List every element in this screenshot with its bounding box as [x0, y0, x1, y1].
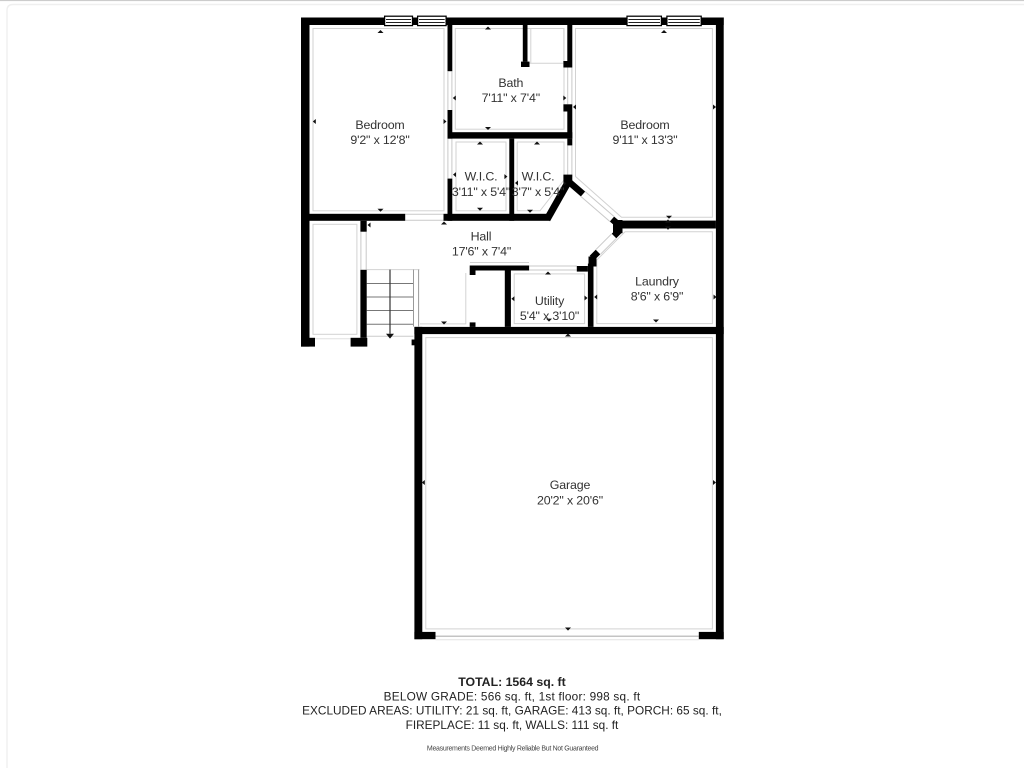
svg-text:3'7" x 5'4": 3'7" x 5'4" — [512, 185, 565, 199]
svg-text:17'6" x 7'4": 17'6" x 7'4" — [452, 245, 511, 259]
svg-text:9'11" x 13'3": 9'11" x 13'3" — [612, 133, 677, 147]
svg-text:Bedroom: Bedroom — [620, 118, 669, 132]
svg-text:9'2" x 12'8": 9'2" x 12'8" — [350, 133, 409, 147]
svg-text:5'4" x 3'10": 5'4" x 3'10" — [520, 309, 579, 323]
svg-text:Hall: Hall — [471, 230, 492, 244]
svg-text:BELOW GRADE: 566 sq. ft, 1st f: BELOW GRADE: 566 sq. ft, 1st floor: 998 … — [384, 689, 641, 703]
svg-text:Garage: Garage — [550, 478, 591, 492]
svg-text:8'6" x 6'9": 8'6" x 6'9" — [631, 290, 684, 304]
svg-text:7'11" x 7'4": 7'11" x 7'4" — [482, 91, 540, 105]
svg-text:W.I.C.: W.I.C. — [522, 170, 555, 184]
svg-text:Bedroom: Bedroom — [355, 118, 404, 132]
svg-text:TOTAL: 1564 sq. ft: TOTAL: 1564 sq. ft — [458, 675, 566, 689]
svg-text:W.I.C.: W.I.C. — [465, 170, 498, 184]
svg-text:Laundry: Laundry — [635, 275, 680, 289]
svg-text:Bath: Bath — [498, 76, 523, 90]
svg-text:EXCLUDED AREAS: UTILITY: 21 sq: EXCLUDED AREAS: UTILITY: 21 sq. ft, GARA… — [302, 703, 722, 717]
svg-text:3'11" x 5'4": 3'11" x 5'4" — [452, 185, 510, 199]
svg-text:Utility: Utility — [535, 294, 565, 308]
svg-text:FIREPLACE: 11 sq. ft, WALLS: 1: FIREPLACE: 11 sq. ft, WALLS: 111 sq. ft — [406, 718, 619, 732]
svg-text:Measurements Deemed Highly Rel: Measurements Deemed Highly Reliable But … — [427, 745, 599, 752]
svg-text:20'2" x 20'6": 20'2" x 20'6" — [537, 494, 603, 508]
